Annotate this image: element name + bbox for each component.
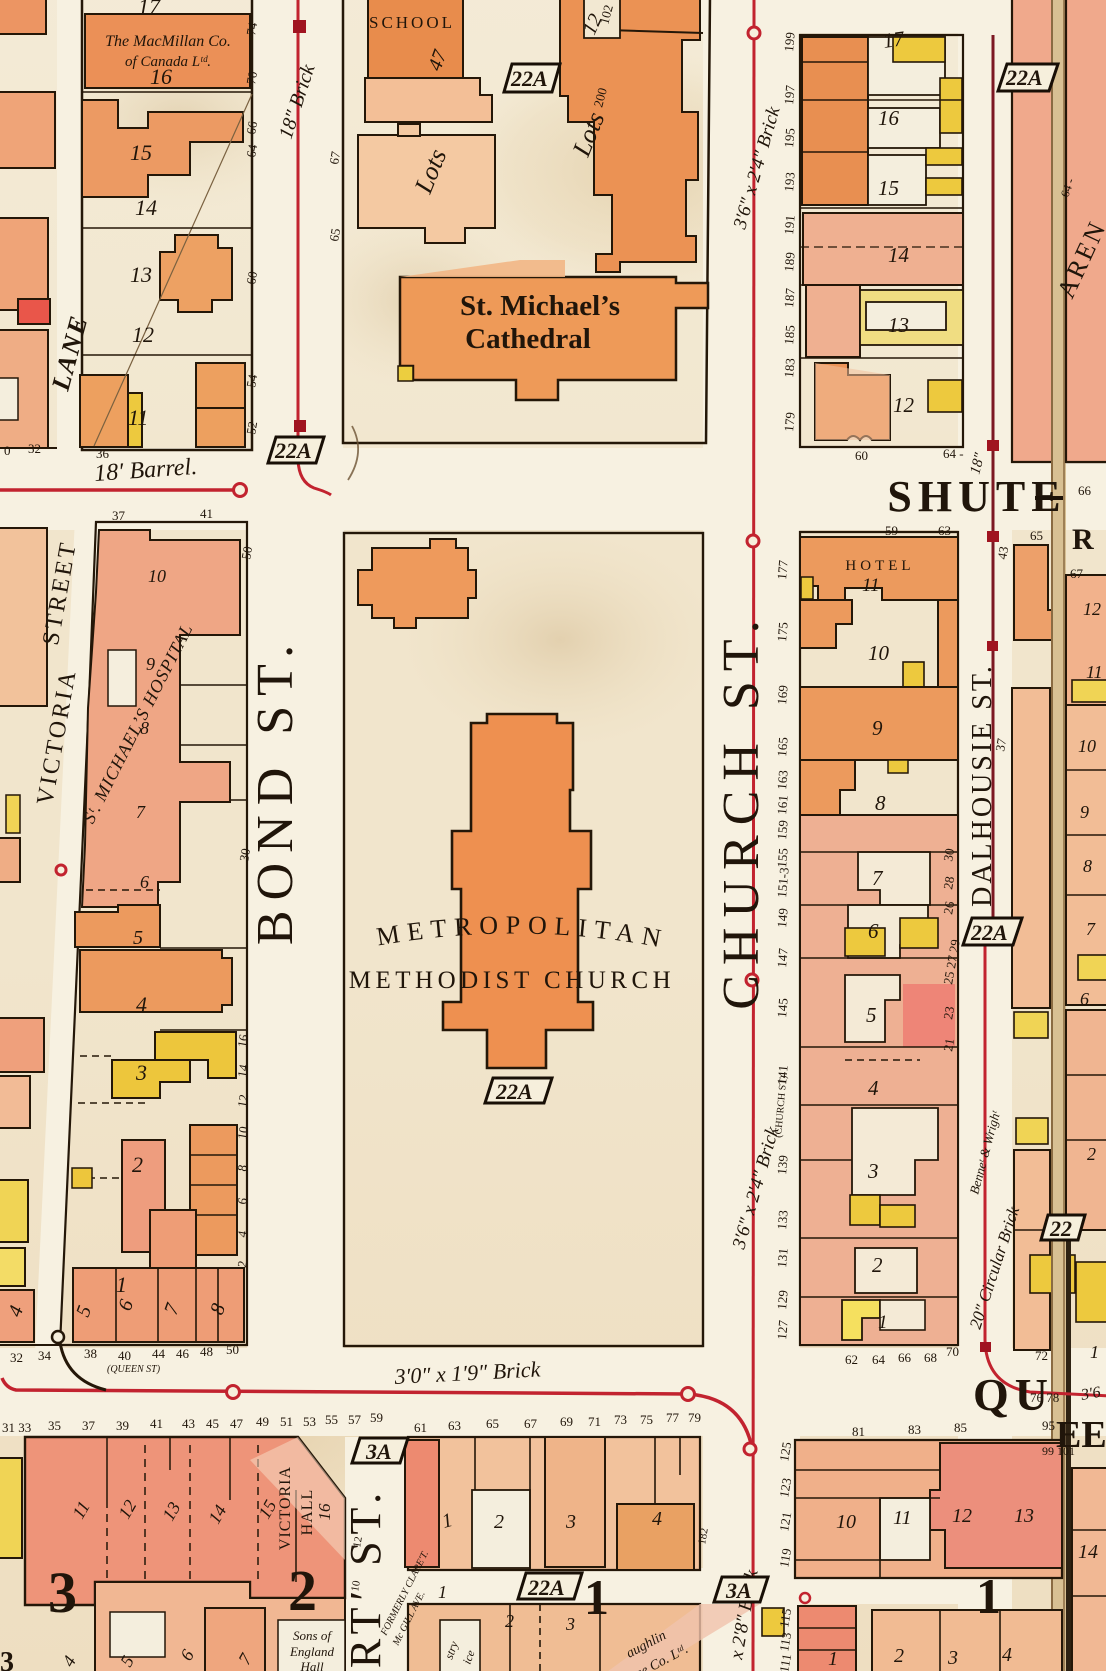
svg-text:60: 60 (243, 270, 260, 285)
svg-text:1: 1 (584, 1569, 609, 1625)
svg-text:3: 3 (565, 1511, 576, 1533)
svg-text:6: 6 (1080, 989, 1089, 1009)
svg-text:31 33: 31 33 (2, 1420, 31, 1435)
svg-text:177: 177 (774, 559, 791, 580)
svg-text:1: 1 (438, 1582, 447, 1602)
svg-text:37: 37 (112, 508, 126, 523)
svg-text:14: 14 (135, 195, 157, 220)
svg-text:2: 2 (894, 1645, 904, 1667)
svg-text:61: 61 (414, 1420, 427, 1435)
svg-text:39: 39 (116, 1418, 129, 1433)
svg-text:2: 2 (872, 1253, 883, 1277)
svg-text:9: 9 (1080, 802, 1089, 822)
svg-text:15: 15 (130, 140, 152, 165)
svg-text:4: 4 (136, 992, 147, 1017)
svg-text:12: 12 (234, 1093, 251, 1108)
svg-text:11: 11 (862, 575, 880, 596)
svg-text:70: 70 (243, 70, 260, 85)
svg-text:3: 3 (867, 1159, 879, 1183)
svg-text:191: 191 (781, 215, 798, 236)
svg-text:22A: 22A (527, 1575, 565, 1600)
svg-text:3A: 3A (725, 1578, 752, 1603)
svg-text:The MacMillan Co.: The MacMillan Co. (105, 33, 231, 50)
svg-text:81: 81 (852, 1424, 865, 1439)
svg-text:49: 49 (256, 1414, 269, 1429)
svg-text:76 78: 76 78 (1030, 1390, 1059, 1405)
svg-text:11: 11 (1086, 662, 1103, 682)
svg-text:163: 163 (774, 770, 791, 791)
svg-text:131: 131 (774, 1248, 791, 1269)
svg-text:7: 7 (136, 802, 146, 822)
svg-text:70: 70 (946, 1344, 959, 1359)
svg-text:69: 69 (560, 1414, 573, 1429)
svg-text:65: 65 (326, 227, 343, 242)
svg-text:36: 36 (96, 446, 110, 461)
svg-text:13: 13 (130, 262, 152, 287)
svg-text:35: 35 (48, 1418, 61, 1433)
svg-text:1: 1 (878, 1312, 888, 1333)
svg-text:59: 59 (370, 1410, 383, 1425)
svg-text:52: 52 (243, 420, 260, 435)
svg-text:95: 95 (1042, 1418, 1055, 1433)
svg-text:8: 8 (140, 718, 149, 738)
svg-text:HALL: HALL (299, 1489, 316, 1536)
svg-text:111: 111 (776, 1653, 794, 1671)
svg-text:169: 169 (774, 685, 791, 706)
svg-text:99 101: 99 101 (1042, 1444, 1075, 1458)
svg-text:VICTORIA: VICTORIA (277, 1466, 294, 1550)
svg-text:0: 0 (4, 443, 11, 458)
svg-text:10: 10 (868, 641, 890, 665)
svg-text:41: 41 (200, 506, 213, 521)
svg-text:187: 187 (781, 287, 798, 308)
svg-text:65: 65 (486, 1416, 499, 1431)
svg-text:50: 50 (226, 1342, 239, 1357)
svg-text:68: 68 (924, 1350, 937, 1365)
svg-text:17: 17 (138, 0, 161, 19)
svg-text:22A: 22A (495, 1079, 533, 1104)
svg-text:183: 183 (781, 358, 798, 379)
svg-text:189: 189 (781, 252, 798, 273)
svg-text:197: 197 (781, 84, 798, 105)
svg-text:175: 175 (774, 622, 791, 643)
svg-text:3: 3 (0, 1647, 14, 1671)
svg-text:6: 6 (868, 919, 879, 943)
svg-text:133: 133 (774, 1210, 791, 1231)
svg-text:9: 9 (146, 654, 155, 674)
svg-text:179: 179 (781, 412, 798, 433)
svg-text:66: 66 (898, 1350, 912, 1365)
svg-text:12: 12 (893, 393, 915, 417)
svg-text:16: 16 (315, 1503, 334, 1521)
svg-text:2: 2 (505, 1611, 514, 1631)
svg-text:75: 75 (640, 1412, 653, 1427)
svg-text:53: 53 (303, 1414, 316, 1429)
svg-text:38: 38 (84, 1346, 97, 1361)
svg-text:155: 155 (774, 848, 791, 869)
svg-text:59: 59 (885, 523, 898, 538)
svg-text:11: 11 (893, 1507, 912, 1529)
svg-text:10: 10 (1078, 736, 1096, 756)
svg-text:5: 5 (866, 1003, 877, 1027)
svg-text:15: 15 (878, 176, 899, 200)
svg-text:12: 12 (351, 1536, 365, 1549)
svg-text:129: 129 (774, 1290, 791, 1311)
svg-text:193: 193 (781, 172, 798, 193)
svg-text:41: 41 (150, 1416, 163, 1431)
svg-text:3: 3 (135, 1060, 147, 1085)
svg-text:63: 63 (938, 523, 951, 538)
svg-text:METHODIST CHURCH: METHODIST CHURCH (349, 967, 675, 994)
svg-text:43: 43 (994, 545, 1011, 560)
svg-text:ERT′ ST.: ERT′ ST. (341, 1486, 390, 1671)
svg-text:64 -: 64 - (943, 446, 964, 461)
svg-text:44: 44 (152, 1346, 166, 1361)
svg-text:Cathedral: Cathedral (465, 323, 591, 355)
svg-text:22A: 22A (970, 920, 1008, 945)
svg-text:32: 32 (28, 441, 41, 456)
svg-text:14: 14 (1078, 1541, 1098, 1563)
svg-text:195: 195 (781, 128, 798, 149)
svg-text:66: 66 (1078, 483, 1092, 498)
svg-text:55: 55 (325, 1412, 338, 1427)
svg-text:SCHOOL: SCHOOL (369, 13, 455, 32)
svg-text:9: 9 (872, 716, 883, 740)
svg-text:10: 10 (836, 1511, 856, 1533)
svg-text:48: 48 (200, 1344, 213, 1359)
svg-text:60: 60 (855, 448, 868, 463)
svg-text:139: 139 (774, 1155, 791, 1176)
svg-text:159: 159 (774, 820, 791, 841)
svg-text:16: 16 (878, 106, 900, 130)
svg-text:47: 47 (230, 1416, 244, 1431)
svg-text:199: 199 (781, 32, 798, 53)
svg-text:5: 5 (133, 927, 143, 949)
svg-text:161: 161 (774, 795, 791, 816)
svg-text:1: 1 (1090, 1342, 1099, 1362)
svg-text:10: 10 (148, 566, 166, 586)
svg-text:149: 149 (774, 908, 791, 929)
svg-text:7: 7 (872, 866, 884, 890)
svg-text:8: 8 (1083, 856, 1092, 876)
svg-text:151-3: 151-3 (774, 867, 792, 899)
svg-text:45: 45 (206, 1416, 219, 1431)
svg-text:85: 85 (954, 1420, 967, 1435)
svg-text:147: 147 (774, 947, 791, 968)
svg-text:64: 64 (872, 1352, 886, 1367)
svg-text:57: 57 (348, 1412, 362, 1427)
svg-text:185: 185 (781, 325, 798, 346)
svg-text:4: 4 (868, 1076, 879, 1100)
svg-text:14: 14 (888, 243, 910, 267)
svg-text:6: 6 (140, 872, 149, 892)
svg-text:62: 62 (845, 1352, 858, 1367)
svg-text:72: 72 (1035, 1348, 1048, 1363)
svg-text:50: 50 (238, 545, 255, 560)
svg-text:16: 16 (150, 64, 172, 89)
svg-text:21: 21 (940, 1037, 957, 1052)
svg-text:73: 73 (614, 1412, 627, 1427)
svg-text:3: 3 (48, 1560, 77, 1625)
svg-text:BOND ST.: BOND ST. (247, 635, 304, 945)
svg-text:7: 7 (1086, 919, 1096, 939)
svg-text:3: 3 (565, 1614, 575, 1634)
svg-text:165: 165 (774, 737, 791, 758)
svg-text:1: 1 (828, 1648, 838, 1670)
svg-text:23: 23 (940, 1005, 957, 1020)
svg-text:83: 83 (908, 1422, 921, 1437)
svg-text:77: 77 (666, 1410, 680, 1425)
svg-text:1: 1 (976, 1568, 1001, 1624)
svg-text:40: 40 (118, 1348, 131, 1363)
svg-text:2: 2 (494, 1511, 504, 1533)
svg-text:43: 43 (182, 1416, 195, 1431)
svg-text:3: 3 (947, 1647, 958, 1669)
svg-text:11: 11 (128, 405, 148, 430)
svg-text:2: 2 (132, 1152, 143, 1177)
svg-text:22A: 22A (510, 66, 548, 91)
svg-text:Sons of: Sons of (293, 1628, 333, 1643)
svg-text:3A: 3A (365, 1439, 392, 1464)
svg-text:13: 13 (1014, 1505, 1034, 1527)
svg-text:2: 2 (288, 1558, 317, 1623)
svg-text:32: 32 (10, 1350, 23, 1365)
svg-text:37: 37 (82, 1418, 96, 1433)
svg-text:(QUEEN ST): (QUEEN ST) (107, 1364, 161, 1375)
svg-text:22A: 22A (274, 438, 312, 463)
svg-text:79: 79 (688, 1410, 701, 1425)
svg-text:34: 34 (38, 1348, 52, 1363)
svg-text:HOTEL: HOTEL (845, 558, 914, 574)
svg-text:1: 1 (116, 1272, 127, 1297)
svg-text:46: 46 (176, 1346, 190, 1361)
svg-text:65: 65 (1030, 528, 1043, 543)
svg-text:22: 22 (1049, 1216, 1072, 1241)
svg-text:8: 8 (875, 791, 886, 815)
svg-text:12: 12 (952, 1505, 972, 1527)
svg-text:67: 67 (1070, 566, 1084, 581)
svg-text:4: 4 (652, 1508, 662, 1530)
svg-text:71: 71 (588, 1414, 601, 1429)
svg-text:4: 4 (1002, 1644, 1012, 1666)
svg-text:12: 12 (1083, 599, 1101, 619)
svg-text:England: England (289, 1644, 335, 1659)
svg-text:Hall: Hall (299, 1659, 324, 1671)
svg-text:28: 28 (940, 875, 957, 890)
svg-text:51: 51 (280, 1414, 293, 1429)
svg-text:13: 13 (888, 313, 909, 337)
svg-text:DALHOUSIE ST.: DALHOUSIE ST. (967, 663, 998, 907)
svg-text:CHURCH ST.: CHURCH ST. (713, 610, 770, 1010)
svg-text:2: 2 (1087, 1144, 1096, 1164)
svg-text:12: 12 (132, 322, 154, 347)
svg-text:127: 127 (774, 1319, 791, 1340)
svg-text:10: 10 (234, 1125, 251, 1140)
svg-text:22A: 22A (1005, 65, 1043, 90)
svg-text:30: 30 (940, 847, 957, 862)
svg-text:3′6: 3′6 (1079, 1384, 1102, 1404)
svg-text:St. Michael’s: St. Michael’s (460, 290, 620, 322)
svg-text:67: 67 (524, 1416, 538, 1431)
svg-text:R: R (1072, 523, 1094, 556)
svg-text:145: 145 (774, 998, 791, 1019)
svg-text:30: 30 (236, 847, 253, 862)
svg-text:63: 63 (448, 1418, 461, 1433)
